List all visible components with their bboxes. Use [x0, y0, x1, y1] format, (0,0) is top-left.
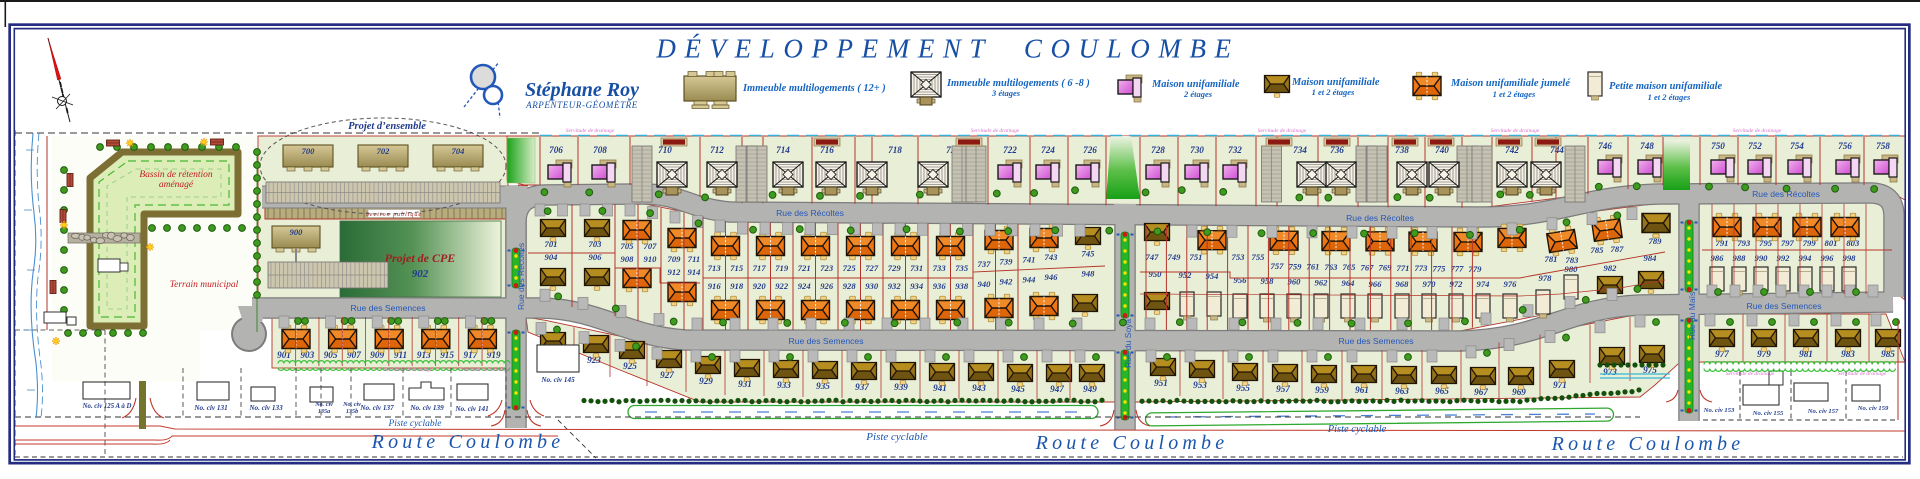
- svg-text:DÉVELOPPEMENT COULOMBE: DÉVELOPPEMENT COULOMBE: [655, 34, 1239, 64]
- svg-text:998: 998: [1843, 253, 1857, 263]
- svg-text:714: 714: [776, 145, 790, 155]
- svg-text:749: 749: [1168, 252, 1182, 262]
- svg-text:700: 700: [302, 146, 316, 156]
- svg-text:No. civ 125 A à D: No. civ 125 A à D: [82, 403, 132, 410]
- svg-text:No. civ 159: No. civ 159: [1857, 405, 1889, 412]
- svg-text:728: 728: [1151, 145, 1165, 155]
- svg-text:964: 964: [1342, 278, 1356, 288]
- svg-text:902: 902: [412, 268, 429, 280]
- svg-text:713: 713: [708, 263, 722, 273]
- svg-text:716: 716: [820, 145, 834, 155]
- svg-text:731: 731: [910, 263, 923, 273]
- svg-text:No. civ 155: No. civ 155: [1752, 410, 1784, 417]
- svg-text:Servitude de drainage: Servitude de drainage: [1838, 371, 1887, 377]
- svg-text:744: 744: [1550, 145, 1564, 155]
- svg-text:956: 956: [1234, 275, 1248, 285]
- svg-text:740: 740: [1435, 145, 1449, 155]
- svg-text:946: 946: [1045, 272, 1059, 282]
- svg-text:789: 789: [1649, 236, 1663, 246]
- svg-text:904: 904: [545, 252, 559, 262]
- svg-text:712: 712: [710, 145, 724, 155]
- svg-text:747: 747: [1146, 252, 1160, 262]
- svg-text:3 étages: 3 étages: [991, 88, 1021, 98]
- svg-text:726: 726: [1083, 145, 1097, 155]
- svg-text:938: 938: [955, 281, 969, 291]
- svg-text:734: 734: [1293, 145, 1307, 155]
- svg-text:924: 924: [798, 281, 812, 291]
- svg-text:No. civ 131: No. civ 131: [193, 404, 227, 412]
- svg-text:ARPENTEUR-GÉOMÈTRE: ARPENTEUR-GÉOMÈTRE: [525, 100, 638, 110]
- svg-text:Servitude de drainage: Servitude de drainage: [1491, 128, 1540, 134]
- svg-text:775: 775: [1433, 263, 1447, 273]
- svg-text:No. civ: No. civ: [342, 401, 361, 408]
- svg-text:738: 738: [1395, 145, 1409, 155]
- svg-text:No. civ 145: No. civ 145: [540, 376, 575, 384]
- svg-text:721: 721: [798, 263, 811, 273]
- svg-text:718: 718: [888, 145, 902, 155]
- svg-text:940: 940: [978, 279, 992, 289]
- svg-text:Rue des Semences: Rue des Semences: [1747, 301, 1822, 311]
- svg-text:No. civ 153: No. civ 153: [1703, 407, 1735, 414]
- svg-text:797: 797: [1781, 238, 1795, 248]
- svg-text:916: 916: [708, 281, 722, 291]
- svg-text:No. civ: No. civ: [314, 401, 333, 408]
- svg-text:982: 982: [1604, 263, 1618, 273]
- svg-text:773: 773: [1415, 263, 1429, 273]
- svg-text:737: 737: [978, 259, 992, 269]
- svg-text:745: 745: [1082, 249, 1096, 259]
- svg-text:704: 704: [452, 146, 465, 156]
- svg-text:Immeuble multilogements ( 12+: Immeuble multilogements ( 12+ ): [742, 83, 886, 94]
- svg-text:Rue des Récoltes: Rue des Récoltes: [516, 243, 526, 310]
- svg-text:952: 952: [1179, 270, 1193, 280]
- svg-text:Rue des Semences: Rue des Semences: [1339, 336, 1414, 346]
- svg-text:976: 976: [1504, 279, 1518, 289]
- svg-text:750: 750: [1711, 141, 1725, 151]
- svg-text:761: 761: [1307, 262, 1320, 272]
- svg-text:990: 990: [1755, 253, 1769, 263]
- svg-text:968: 968: [1396, 279, 1410, 289]
- svg-text:733: 733: [933, 263, 947, 273]
- svg-text:739: 739: [1000, 257, 1014, 267]
- svg-text:746: 746: [1598, 141, 1612, 151]
- svg-text:Piste cyclable: Piste cyclable: [865, 431, 928, 443]
- svg-text:719: 719: [775, 263, 789, 273]
- svg-text:926: 926: [820, 281, 834, 291]
- svg-text:910: 910: [644, 254, 658, 264]
- svg-text:730: 730: [1190, 145, 1204, 155]
- svg-text:777: 777: [1451, 264, 1465, 274]
- svg-text:754: 754: [1790, 141, 1804, 151]
- svg-text:787: 787: [1611, 244, 1625, 254]
- svg-text:Petite maison unifamiliale: Petite maison unifamiliale: [1609, 81, 1723, 92]
- svg-text:994: 994: [1799, 253, 1813, 263]
- svg-text:Rue du Soya: Rue du Soya: [1123, 319, 1133, 368]
- svg-text:922: 922: [775, 281, 789, 291]
- svg-text:757: 757: [1271, 261, 1285, 271]
- svg-text:708: 708: [593, 145, 607, 155]
- svg-text:Rue des Récoltes: Rue des Récoltes: [776, 208, 844, 218]
- svg-text:Servitude de drainage: Servitude de drainage: [1733, 128, 1782, 134]
- svg-text:912: 912: [668, 267, 682, 277]
- svg-text:723: 723: [820, 263, 834, 273]
- svg-text:932: 932: [888, 281, 902, 291]
- svg-text:900: 900: [290, 227, 304, 237]
- svg-text:724: 724: [1041, 145, 1055, 155]
- svg-text:Piste cyclable: Piste cyclable: [1327, 424, 1387, 435]
- svg-text:Servitude de drainage: Servitude de drainage: [1258, 128, 1307, 134]
- svg-text:763: 763: [1325, 262, 1339, 272]
- svg-text:No. civ 141: No. civ 141: [454, 405, 488, 413]
- svg-text:765: 765: [1343, 262, 1357, 272]
- svg-text:930: 930: [865, 281, 879, 291]
- svg-text:974: 974: [1477, 279, 1491, 289]
- svg-text:742: 742: [1505, 145, 1519, 155]
- svg-text:Stéphane Roy: Stéphane Roy: [525, 79, 639, 101]
- svg-text:725: 725: [843, 263, 857, 273]
- svg-text:135a: 135a: [318, 408, 330, 415]
- svg-text:944: 944: [1023, 274, 1037, 284]
- svg-text:Servitude de drainage: Servitude de drainage: [461, 367, 510, 373]
- svg-text:759: 759: [1289, 261, 1303, 271]
- svg-text:2 étages: 2 étages: [1183, 89, 1213, 99]
- svg-text:970: 970: [1423, 279, 1437, 289]
- svg-text:Route Coulombe: Route Coulombe: [1551, 433, 1745, 455]
- svg-text:793: 793: [1737, 238, 1751, 248]
- svg-text:771: 771: [1397, 263, 1410, 273]
- svg-text:769: 769: [1379, 263, 1393, 273]
- svg-text:785: 785: [1591, 245, 1605, 255]
- svg-text:756: 756: [1838, 141, 1852, 151]
- svg-text:722: 722: [1003, 145, 1017, 155]
- svg-text:Terrain municipal: Terrain municipal: [170, 280, 239, 290]
- svg-text:aménagé: aménagé: [159, 180, 194, 190]
- svg-text:727: 727: [865, 263, 879, 273]
- svg-text:779: 779: [1469, 264, 1483, 274]
- svg-text:Section publique: Section publique: [366, 212, 422, 218]
- svg-text:948: 948: [1082, 269, 1096, 279]
- svg-text:Route Coulombe: Route Coulombe: [371, 431, 565, 453]
- svg-text:751: 751: [1190, 252, 1203, 262]
- svg-text:928: 928: [843, 281, 857, 291]
- svg-text:715: 715: [730, 263, 744, 273]
- svg-text:914: 914: [688, 267, 702, 277]
- svg-text:Rue des Récoltes: Rue des Récoltes: [1346, 213, 1414, 223]
- svg-text:Maison unifamiliale jumelé: Maison unifamiliale jumelé: [1450, 78, 1570, 89]
- svg-text:Servitude de drainage: Servitude de drainage: [971, 128, 1020, 134]
- svg-text:729: 729: [888, 263, 902, 273]
- svg-text:906: 906: [589, 252, 603, 262]
- svg-text:741: 741: [1023, 254, 1036, 264]
- svg-text:936: 936: [933, 281, 947, 291]
- svg-text:Projet de CPE: Projet de CPE: [385, 251, 456, 265]
- svg-text:758: 758: [1876, 141, 1890, 151]
- svg-text:No. civ 157: No. civ 157: [1807, 408, 1839, 415]
- svg-text:1 et 2 étages: 1 et 2 étages: [1312, 87, 1355, 97]
- svg-text:736: 736: [1330, 145, 1344, 155]
- svg-text:Bassin de rétention: Bassin de rétention: [139, 170, 213, 180]
- svg-text:702: 702: [377, 146, 391, 156]
- svg-text:No. civ 137: No. civ 137: [359, 404, 394, 412]
- svg-text:986: 986: [1711, 253, 1725, 263]
- svg-text:992: 992: [1777, 253, 1791, 263]
- svg-text:908: 908: [621, 254, 635, 264]
- svg-text:No. civ 133: No. civ 133: [248, 404, 283, 412]
- svg-text:958: 958: [1261, 276, 1275, 286]
- svg-text:Servitude de drainage: Servitude de drainage: [384, 367, 433, 373]
- svg-text:1 et 2 étages: 1 et 2 étages: [1648, 92, 1691, 102]
- svg-text:942: 942: [1000, 277, 1014, 287]
- svg-text:Route Coulombe: Route Coulombe: [1035, 432, 1229, 454]
- svg-text:732: 732: [1228, 145, 1242, 155]
- svg-text:918: 918: [730, 281, 744, 291]
- svg-text:Piste cyclable: Piste cyclable: [387, 419, 441, 429]
- svg-text:743: 743: [1045, 252, 1059, 262]
- svg-text:934: 934: [910, 281, 924, 291]
- svg-text:Rue des Semences: Rue des Semences: [789, 336, 864, 346]
- svg-text:920: 920: [753, 281, 767, 291]
- svg-text:711: 711: [688, 254, 700, 264]
- svg-text:710: 710: [658, 145, 672, 155]
- svg-text:996: 996: [1821, 253, 1835, 263]
- svg-text:753: 753: [1232, 252, 1246, 262]
- svg-text:767: 767: [1361, 262, 1375, 272]
- svg-text:Servitude de drainage: Servitude de drainage: [566, 128, 615, 134]
- svg-text:962: 962: [1315, 277, 1329, 287]
- svg-text:755: 755: [1252, 252, 1266, 262]
- svg-text:735: 735: [955, 263, 969, 273]
- svg-text:Projet d’ensemble: Projet d’ensemble: [348, 121, 426, 132]
- svg-text:717: 717: [753, 263, 767, 273]
- svg-text:706: 706: [549, 145, 563, 155]
- svg-text:Rue des Semences: Rue des Semences: [351, 303, 426, 313]
- svg-text:950: 950: [1149, 269, 1163, 279]
- svg-text:135b: 135b: [346, 408, 358, 415]
- svg-text:988: 988: [1733, 253, 1747, 263]
- svg-text:1 et 2 étages: 1 et 2 étages: [1493, 89, 1536, 99]
- svg-text:Rue des Récoltes: Rue des Récoltes: [1752, 189, 1820, 199]
- svg-text:No. civ 139: No. civ 139: [409, 404, 444, 412]
- svg-text:Servitude de drainage: Servitude de drainage: [1726, 371, 1775, 377]
- svg-text:752: 752: [1748, 141, 1762, 151]
- svg-text:748: 748: [1640, 141, 1654, 151]
- svg-text:Rue du Maïs: Rue du Maïs: [1687, 292, 1697, 340]
- svg-text:709: 709: [668, 254, 682, 264]
